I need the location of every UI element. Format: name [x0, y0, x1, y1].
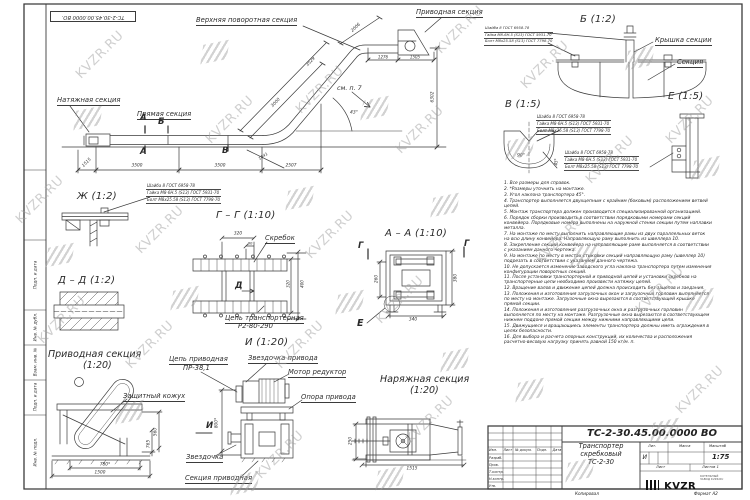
callout-line: Гайка М8-6Н.5 (S13) ГОСТ 5931-70 [536, 121, 611, 128]
dim-aa-340: 340 [409, 318, 417, 323]
note-item: 11. После установки транспортерной и при… [504, 276, 712, 286]
col-list: Лист [504, 448, 513, 452]
scale-value: 1:75 [712, 453, 729, 461]
dim-drive-1500: 1500 [95, 471, 106, 476]
hardware-callout-b: Шайба 8 ГОСТ 6958-78Гайка М8-6Н.5 (S13) … [484, 26, 553, 46]
callout-line: Шайба 8 ГОСТ 6958-78 [146, 183, 221, 190]
view-title-i: И (1:20) [245, 337, 288, 348]
label-section: Секция [677, 58, 703, 68]
label-upper-turn-section: Верхняя поворотная секция [196, 16, 297, 26]
callout-line: Гайка М8-6Н.5 (S13) ГОСТ 5931-70 [564, 157, 639, 164]
frame-label-podp-data-1: Подп. и дата [33, 261, 38, 290]
label-drive-chain-model: ПР-38,1 [183, 364, 210, 372]
name-line-3: ТС-2-30 [562, 459, 640, 467]
dim-gg-400: 400 [300, 280, 305, 288]
label-sprocket: Звездочка [186, 453, 223, 463]
row-utv: Утв. [489, 484, 496, 488]
dim-aa-380: 380 [454, 274, 459, 282]
view-drive-section [50, 375, 212, 478]
dim-90deg: 90° [517, 154, 525, 159]
lit-label: Лит. [648, 444, 656, 448]
dim-1276: 1276 [378, 55, 388, 60]
dim-1505: 1505 [410, 55, 420, 60]
view-tension-section [352, 417, 466, 467]
hardware-callout-v: Шайба 8 ГОСТ 6958-78Гайка М8-6Н.5 (S13) … [536, 114, 611, 135]
dim-gg-320: 320 [234, 232, 242, 237]
dim-drive-765: 765 [147, 440, 152, 448]
marker-g-left: Г [358, 241, 363, 251]
dim-tension-250: 250 [349, 437, 354, 445]
note-item: 7. На монтаже по месту выполнить направл… [504, 233, 712, 243]
note-item: 4. Транспортер выполняется двухцепным с … [504, 200, 712, 210]
note-item: 14. Положения и изготовления разгрузочны… [504, 309, 712, 324]
format-label: Формат А2 [694, 491, 718, 496]
hardware-callout-zh: Шайба 8 ГОСТ 6958-78Гайка М8-6Н.5 (S13) … [146, 183, 221, 204]
kvzr-logo-stripes-icon [646, 480, 659, 490]
callout-line: Гайка М8-6Н.5 (S13) ГОСТ 5931-70 [146, 190, 221, 197]
view-e [650, 114, 704, 178]
view-gg [193, 236, 306, 321]
callout-line: Болт М8х25.58 (S13) ГОСТ 7798-70 [536, 128, 611, 135]
dim-3500a: 3500 [132, 164, 143, 169]
note-item: 6. Порядок сборки производить в соответс… [504, 217, 712, 232]
dim-tension-1515: 1515 [407, 467, 418, 472]
marker-d: Д [235, 281, 243, 291]
note-item: 8. Закрепление секций конвейера на напра… [504, 244, 712, 254]
view-title-zh: Ж (1:2) [77, 191, 117, 202]
label-tension-section: Натяжная секция [57, 96, 120, 106]
kvzr-logo-word: KVZR [664, 481, 696, 492]
view-scale-drive: (1:20) [83, 360, 112, 371]
callout-line: Болт М8х25.58 (S13) ГОСТ 7798-70 [484, 39, 553, 46]
marker-e: Е [357, 318, 364, 329]
label-see-note: см. п. 7 [337, 84, 362, 92]
title-block-doc-number: ТС-2-30.45.00.0000 ВО [564, 428, 740, 439]
marker-i-view: И [206, 421, 213, 431]
dim-drive-560: 560 [154, 428, 159, 436]
top-stamp-doc-number: ТС-2-30.45.00.0000 ВО. [50, 11, 136, 22]
marker-g-right: Г [464, 239, 469, 249]
scale-label: Масштаб [709, 444, 726, 448]
label-scraper: Скребок [265, 234, 295, 244]
col-podp: Подп. [537, 448, 547, 452]
view-zh [62, 197, 150, 246]
row-nkontr: Н.контр. [489, 477, 504, 481]
dim-2507: 2507 [286, 164, 297, 169]
frame-label-podp-data-2: Подп. и дата [33, 383, 38, 412]
label-drive-support: Опора привода [301, 393, 356, 403]
view-title-dd: Д – Д (1:2) [58, 275, 115, 286]
view-title-aa: А – А (1:10) [385, 228, 447, 239]
copied-label: Копировал [575, 491, 599, 496]
note-item: 9. На монтаже по месту в местах стыковки… [504, 255, 712, 265]
label-protective-cover: Защитный кожух [123, 392, 185, 402]
col-data: Дата [553, 448, 562, 452]
notes-list: 1. Все размеры для справок.2. *Размеры у… [504, 182, 712, 347]
row-prov: Пров. [489, 463, 499, 467]
note-item: 10. Не допускается изменение заводского … [504, 266, 712, 276]
col-izm: Изм. [489, 448, 497, 452]
logo-sub-line2: ЗАВОД KVZR.RU [700, 478, 723, 481]
drawing-sheet: KVZR.RUKVZR.RUKVZR.RUKVZR.RUKVZR.RUKVZR.… [0, 0, 750, 500]
dim-45: 45* [554, 158, 559, 165]
sheets-label: Листов 1 [702, 465, 719, 469]
callout-line: Болт М8х25.58 (S13) ГОСТ 7798-70 [564, 164, 639, 171]
label-motor-reducer: Мотор редуктор [288, 368, 346, 378]
view-title-drive: Приводная секция [48, 349, 141, 360]
note-item: 16. Для выбора и расчета опорных констру… [504, 336, 712, 346]
view-aa [367, 247, 464, 323]
dim-drive-780: 780* [100, 463, 110, 468]
kvzr-logo-subtitle: КОТЕЛЬНЫЙ ЗАВОД KVZR.RU [700, 475, 723, 481]
dim-6302: 6302 [431, 92, 436, 103]
dim-i-800: 800* [215, 418, 220, 428]
marker-a-top: А [140, 113, 147, 123]
frame-label-inv-podl: Инв. № подл. [33, 438, 38, 467]
col-doc: № докум. [515, 448, 532, 452]
label-conveyor-chain-model: Р2-80-290 [238, 322, 273, 330]
kvzr-logo: KVZR [646, 474, 696, 493]
frame-label-vzam-inv: Взам. инв. № [33, 348, 38, 376]
note-item: 15. Движущиеся и вращающиесь элементы тр… [504, 325, 712, 335]
callout-line: Болт М8х25.58 (S13) ГОСТ 7798-70 [146, 197, 221, 204]
title-block-name: Транспортер скребковый ТС-2-30 [562, 443, 640, 467]
view-scale-tension: (1:20) [410, 385, 439, 396]
marker-b: Б [158, 117, 164, 127]
view-title-v: В (1:5) [505, 99, 541, 110]
dim-aa-260: 260 [375, 275, 380, 283]
label-drive-sprocket: Звездочка привода [248, 354, 318, 364]
dim-angle-43: 43° [350, 111, 358, 116]
view-title-gg: Г – Г (1:10) [216, 210, 276, 221]
mass-label: Масса [679, 444, 690, 448]
row-razrab: Разраб. [489, 456, 502, 460]
main-view [62, 16, 446, 173]
marker-a-bottom: А [140, 147, 147, 157]
marker-v: В [222, 146, 228, 156]
dim-3500b: 3500 [215, 164, 226, 169]
row-tkontr: Т.контр. [489, 470, 504, 474]
hardware-callout-e: Шайба 8 ГОСТ 6958-78Гайка М8-6Н.5 (S13) … [564, 150, 639, 171]
view-title-tension: Наряжная секция [380, 374, 469, 385]
frame-label-inv-dubl: Инв. № дубл. [33, 313, 38, 342]
callout-line: Шайба 8 ГОСТ 6958-78 [564, 150, 639, 157]
dim-gg-320r: 320 [286, 280, 291, 288]
note-item: 13. Положения и изготовления загрузочных… [504, 293, 712, 308]
label-drive-section: Приводная секция [416, 8, 483, 18]
callout-line: Шайба 8 ГОСТ 6958-78 [536, 114, 611, 121]
label-drive-section-part: Секция приводная [185, 474, 252, 484]
view-title-b: Б (1:2) [580, 14, 616, 25]
sheet-label: Лист [656, 465, 665, 469]
lit-value: И [643, 454, 648, 461]
dim-gg-80: 80 [248, 241, 253, 246]
view-dd [54, 292, 124, 330]
view-title-e: Е (1:5) [668, 91, 704, 102]
label-section-cover: Крышка секции [655, 36, 712, 46]
